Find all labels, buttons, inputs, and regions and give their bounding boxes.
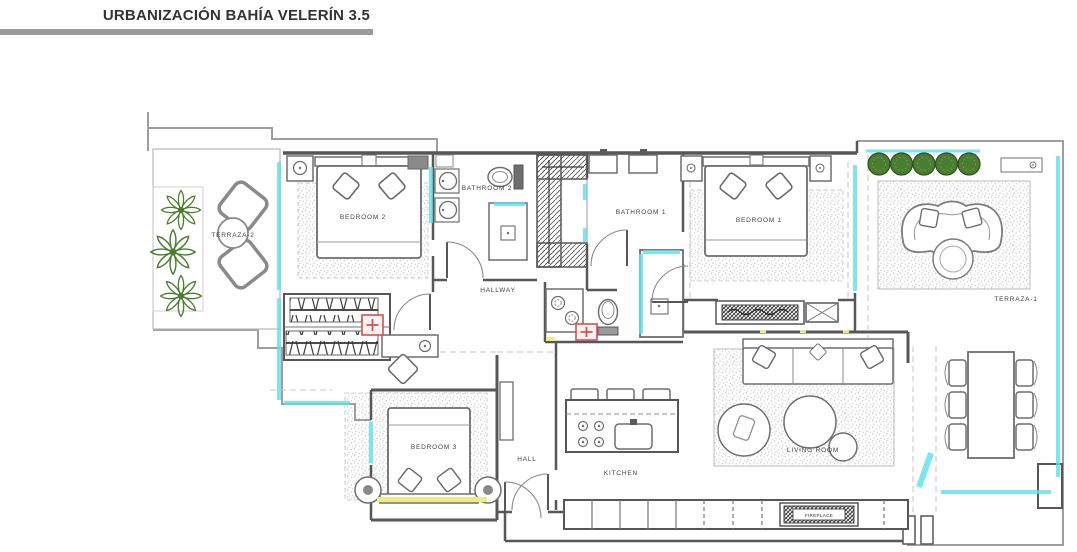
chair-icon [949,424,966,450]
livingroom-label: LIVING ROOM [787,447,839,454]
stool-icon [607,389,634,400]
terraza2-label: TERRAZA-2 [211,232,254,239]
bottom-counter: FIREPLACE [564,500,908,529]
bush-icon [891,153,913,175]
floor-plan-page: URBANIZACIÓN BAHÍA VELERÍN 3.5 [0,0,1077,552]
bushes [868,153,980,175]
armchair-icon [718,404,770,456]
hall-label: HALL [517,456,536,463]
stool-icon [643,389,670,400]
hallway-label: HALLWAY [480,287,515,294]
chair-icon [949,392,966,418]
radiator-icon [500,382,513,440]
shower-icon [640,250,683,337]
round-table-icon [933,239,973,279]
kitchen-furniture [566,389,678,452]
plant-icon [161,276,202,317]
bed-icon [317,166,421,258]
sink-icon [629,155,657,173]
bush-icon [936,153,958,175]
bush-icon [868,153,890,175]
kitchen-label: KITCHEN [604,470,638,477]
bathroom2-label: BATHROOM 2 [462,185,513,192]
fireplace-lower: FIREPLACE [780,503,858,526]
chair-icon [1016,424,1033,450]
bedroom3-label: BEDROOM 3 [411,444,457,451]
fireplace-upper [716,301,838,324]
chair-icon [1016,392,1033,418]
plants [151,190,202,316]
chair-icon [949,360,966,386]
bedroom2-label: BEDROOM 2 [340,214,386,221]
bush-icon [958,153,980,175]
desk-icon [382,335,438,357]
plant-icon [151,230,195,274]
sink-icon [589,155,617,173]
coffee-table-icon [784,396,836,448]
fireplace-label: FIREPLACE [805,513,833,518]
shower-icon [489,203,527,260]
floor-plan-drawing: FIREPLACE [0,0,1077,552]
desk-chair-icon [387,353,418,384]
bush-icon [913,153,935,175]
toilet-icon [599,300,618,325]
sliding-door-icon [919,453,931,487]
terraza1-label: TERRAZA-1 [994,296,1037,303]
bathroom1-label: BATHROOM 1 [616,209,667,216]
bedroom1-label: BEDROOM 1 [736,217,782,224]
bathroom2-fixtures [435,155,527,260]
dining-table-icon [968,352,1014,458]
walkin-closet [537,155,587,267]
toilet-icon [488,168,512,187]
dining-furniture [945,352,1037,458]
electrical-symbol [362,315,383,335]
electrical-symbol [576,324,597,340]
stool-icon [571,389,598,400]
plant-icon [161,190,200,229]
bed-icon [705,166,807,256]
chair-icon [1016,360,1033,386]
